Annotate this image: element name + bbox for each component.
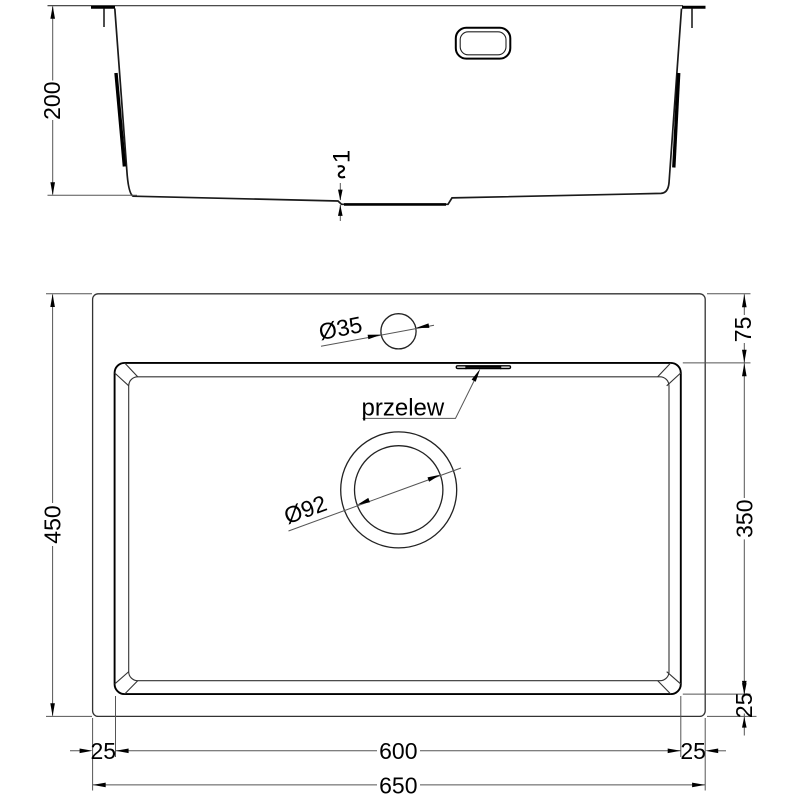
- svg-text:przelew: przelew: [362, 394, 445, 421]
- svg-text:350: 350: [732, 500, 758, 538]
- svg-text:25: 25: [680, 738, 706, 764]
- svg-text:450: 450: [39, 505, 65, 543]
- svg-text:75: 75: [730, 317, 756, 343]
- svg-text:200: 200: [39, 82, 65, 120]
- svg-text:600: 600: [379, 738, 417, 764]
- svg-text:1: 1: [328, 150, 355, 163]
- svg-text:25: 25: [731, 693, 757, 719]
- svg-text:25: 25: [91, 738, 117, 764]
- svg-text:650: 650: [379, 772, 417, 798]
